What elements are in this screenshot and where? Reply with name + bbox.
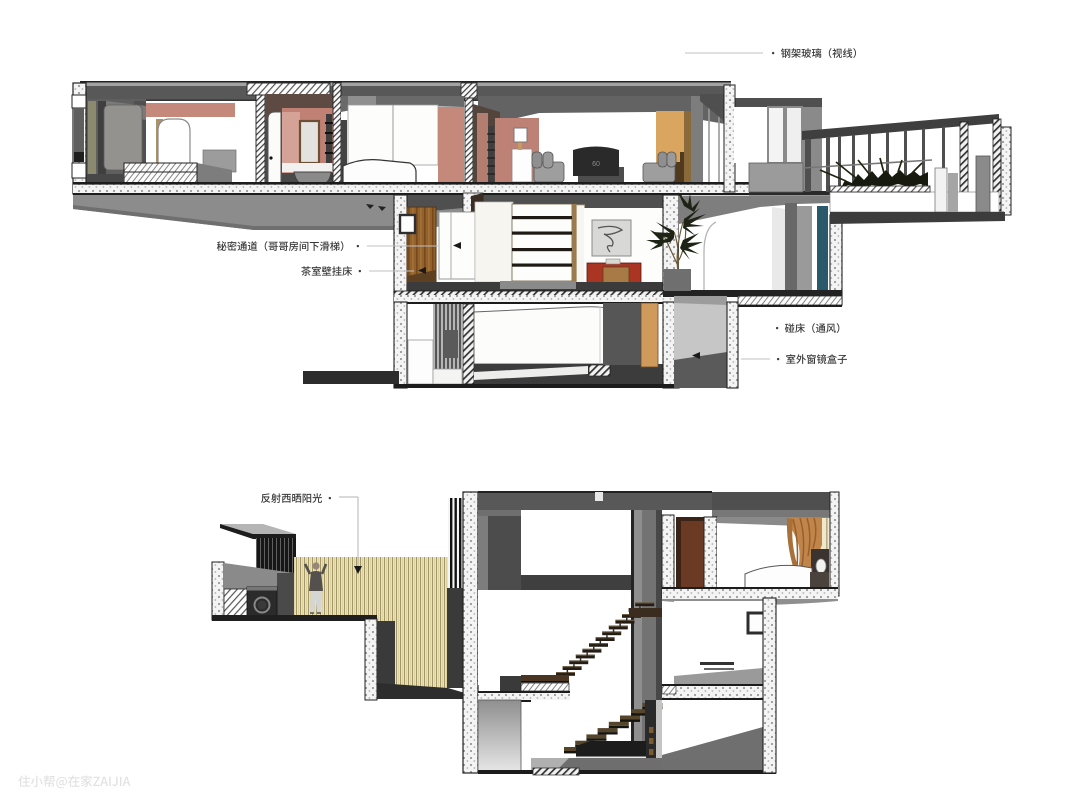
svg-text:60: 60 — [592, 161, 600, 168]
